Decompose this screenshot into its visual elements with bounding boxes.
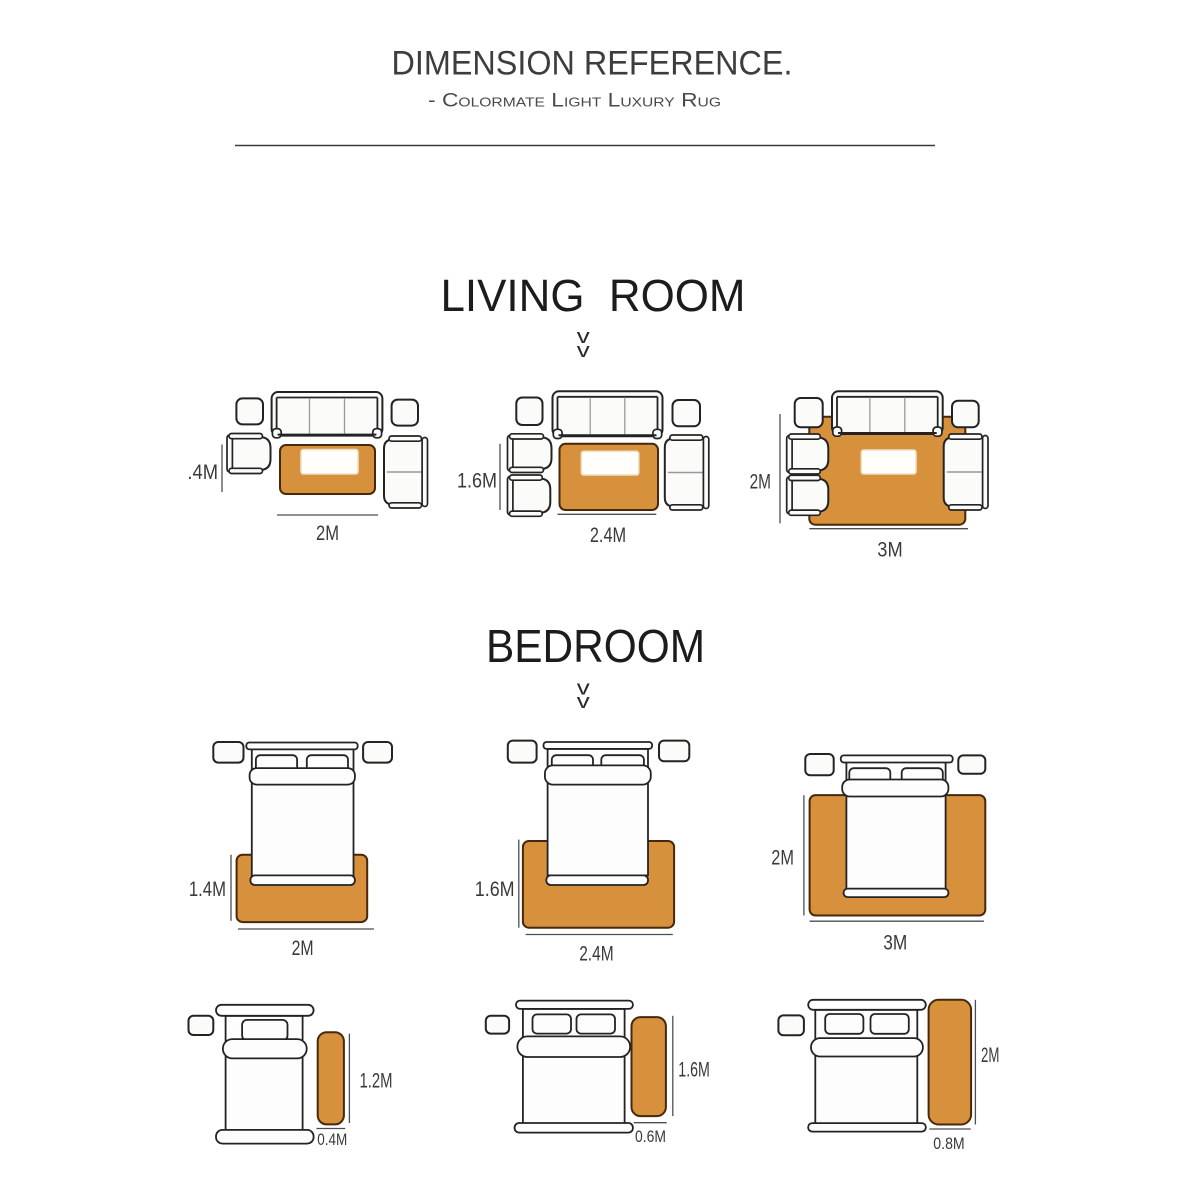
svg-text:2M: 2M (981, 1044, 999, 1067)
svg-text:1.6M: 1.6M (475, 878, 515, 901)
svg-text:- Colormate Light Luxury Rug: - Colormate Light Luxury Rug (428, 91, 721, 112)
svg-text:DIMENSION REFERENCE.: DIMENSION REFERENCE. (392, 45, 793, 83)
svg-text:1.6M: 1.6M (457, 470, 497, 493)
svg-text:0.8M: 0.8M (933, 1134, 964, 1153)
svg-text:1.2M: 1.2M (360, 1070, 393, 1093)
svg-text:v: v (577, 691, 590, 713)
svg-text:BEDROOM: BEDROOM (486, 620, 705, 672)
svg-text:2.4M: 2.4M (590, 524, 626, 547)
svg-text:2M: 2M (750, 471, 771, 494)
svg-text:.4M: .4M (187, 461, 218, 484)
svg-text:2M: 2M (316, 522, 339, 545)
svg-text:3M: 3M (877, 539, 902, 562)
svg-text:2.4M: 2.4M (579, 943, 613, 966)
svg-text:0.4M: 0.4M (317, 1130, 347, 1149)
svg-text:2M: 2M (771, 847, 794, 870)
svg-text:2M: 2M (292, 937, 314, 960)
svg-text:0.6M: 0.6M (635, 1127, 666, 1146)
svg-text:v: v (577, 340, 590, 362)
svg-text:3M: 3M (883, 932, 907, 955)
svg-text:1.4M: 1.4M (189, 878, 226, 901)
svg-text:1.6M: 1.6M (678, 1058, 710, 1081)
svg-text:LIVING ROOM: LIVING ROOM (441, 270, 746, 321)
